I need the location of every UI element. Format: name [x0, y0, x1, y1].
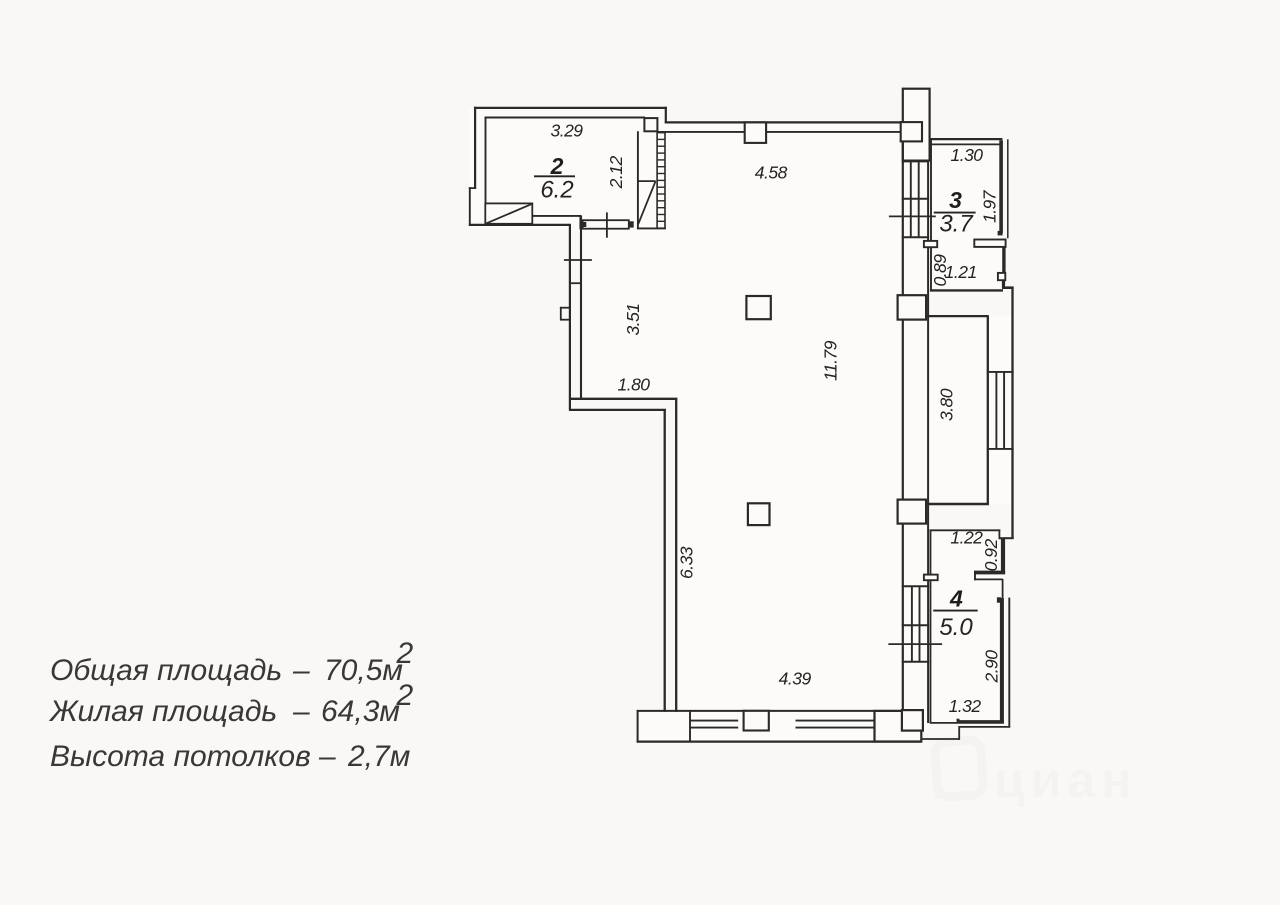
- svg-text:6.33: 6.33: [677, 546, 697, 579]
- svg-text:1.97: 1.97: [979, 189, 999, 223]
- svg-text:3.29: 3.29: [550, 121, 583, 141]
- svg-text:3: 3: [949, 187, 962, 213]
- svg-text:1.21: 1.21: [945, 262, 977, 282]
- svg-text:4.39: 4.39: [779, 669, 812, 689]
- svg-text:2: 2: [396, 679, 414, 712]
- svg-text:1.32: 1.32: [949, 696, 982, 716]
- svg-text:4.58: 4.58: [755, 163, 788, 183]
- svg-text:3.51: 3.51: [623, 303, 643, 335]
- svg-text:2.12: 2.12: [606, 156, 626, 190]
- svg-text:11.79: 11.79: [821, 340, 841, 381]
- svg-text:2: 2: [550, 153, 564, 179]
- svg-text:0.92: 0.92: [981, 539, 1001, 572]
- svg-text:Общая площадь–70,5м: Общая площадь–70,5м: [50, 654, 403, 687]
- svg-text:2.90: 2.90: [981, 650, 1001, 684]
- svg-text:2: 2: [396, 637, 414, 670]
- svg-text:циан: циан: [994, 752, 1137, 808]
- svg-text:4: 4: [949, 586, 963, 612]
- svg-text:3.80: 3.80: [936, 388, 956, 421]
- svg-text:3.7: 3.7: [939, 211, 974, 238]
- svg-text:Жилая площадь–64,3м: Жилая площадь–64,3м: [48, 695, 400, 728]
- svg-text:1.22: 1.22: [950, 528, 983, 548]
- svg-text:1.30: 1.30: [950, 145, 983, 165]
- svg-text:Высота потолков–2,7м: Высота потолков–2,7м: [50, 740, 410, 773]
- svg-text:1.80: 1.80: [617, 375, 650, 395]
- svg-text:5.0: 5.0: [939, 614, 973, 641]
- svg-text:6.2: 6.2: [540, 177, 573, 204]
